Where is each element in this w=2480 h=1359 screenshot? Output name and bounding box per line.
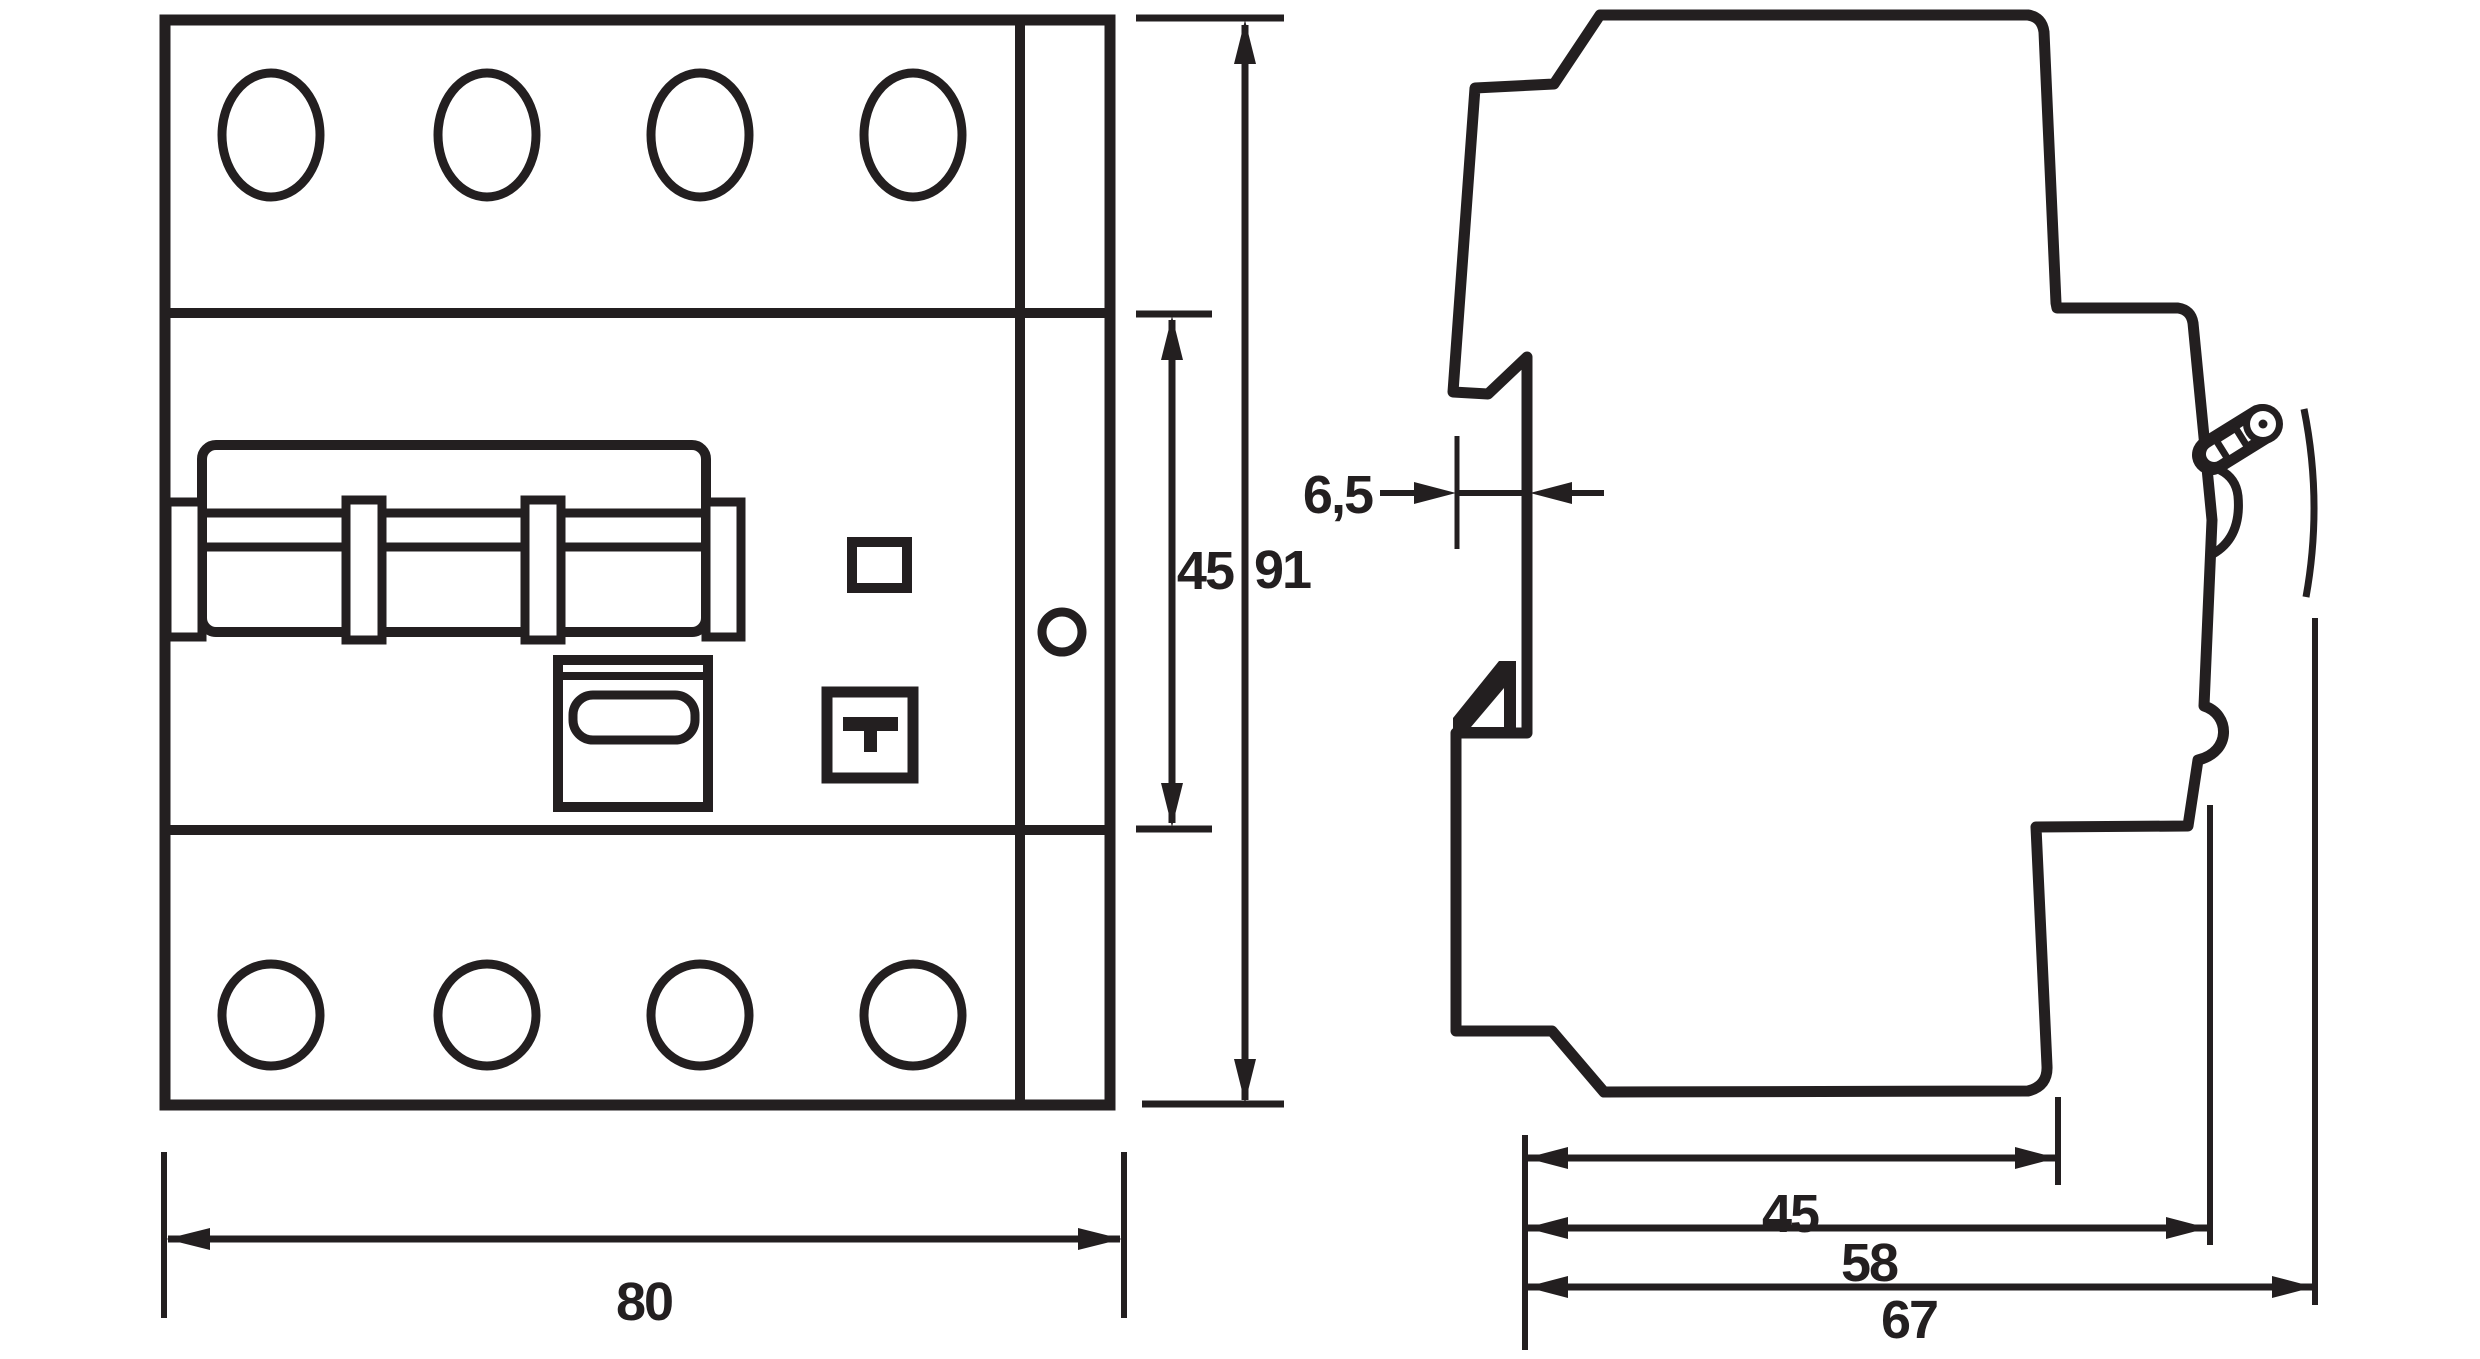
handle-window [573, 695, 695, 740]
arrowhead [1526, 1147, 1568, 1169]
arrowhead [2166, 1217, 2208, 1239]
arrowhead [1234, 1059, 1256, 1103]
arrowhead [1526, 1217, 1568, 1239]
side-profile-outline [1453, 15, 2224, 1092]
arrowhead [2015, 1147, 2057, 1169]
rating-marking-square [852, 542, 907, 588]
rocker-end-cap [167, 502, 202, 637]
arrowhead [1161, 783, 1183, 827]
dimension-label-recess: 6,5 [1303, 465, 1373, 525]
technical-drawing-page: 45 91 80 [0, 0, 2480, 1359]
switch-rocker-body [202, 445, 706, 632]
dimension-label-depth-front: 45 [1762, 1184, 1819, 1244]
arrowhead [1078, 1228, 1122, 1250]
arrowhead [1161, 316, 1183, 360]
side-view [1453, 15, 2314, 1092]
lever-pivot-dot [2259, 420, 2268, 429]
dimension-label-width: 80 [616, 1272, 672, 1332]
front-view [165, 20, 1110, 1105]
dimension-label-module-height: 45 [1177, 541, 1234, 601]
rocker-tie-bar [525, 500, 561, 640]
rocker-tie-bar [346, 500, 382, 640]
dimension-drawing-canvas: 45 91 80 [0, 0, 2480, 1359]
dimension-label-overall-height: 91 [1254, 540, 1311, 600]
arrowhead [166, 1228, 210, 1250]
rocker-end-cap [706, 502, 741, 637]
toggle-lever [2209, 404, 2283, 556]
arrowhead [2272, 1276, 2314, 1298]
lever-swing-arc [2304, 409, 2314, 597]
arrowhead [1526, 1276, 1568, 1298]
dimension-label-depth-total: 67 [1881, 1290, 1937, 1350]
arrowhead [1414, 482, 1456, 504]
arrowhead [1234, 20, 1256, 64]
